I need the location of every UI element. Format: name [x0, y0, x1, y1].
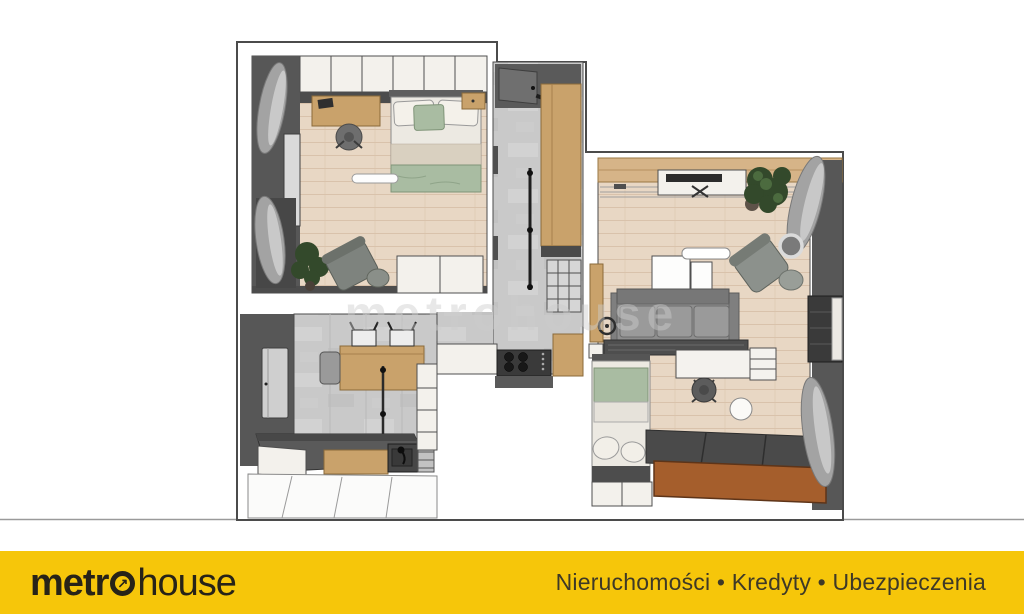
kitchen-counter-white — [437, 344, 497, 374]
kitchen-bottom-cabinets — [248, 474, 437, 518]
metrohouse-logo: metr ↗ house — [30, 564, 236, 602]
bedroom-desk-chair — [336, 124, 362, 150]
floor-plan-svg: metrohouse — [0, 0, 1024, 551]
wall-shelf-unit — [808, 296, 842, 362]
white-bench — [682, 248, 730, 259]
white-pouf — [730, 398, 752, 420]
brand-bar: metr ↗ house Nieruchomości • Kredyty • U… — [0, 551, 1024, 614]
logo-arrow-icon: ↗ — [110, 571, 135, 596]
bedroom-runner — [352, 174, 398, 183]
kitchen-chair — [320, 352, 340, 384]
watermark-text: metrohouse — [345, 288, 680, 341]
kitchen — [240, 314, 437, 518]
hallway-door-frame-2 — [493, 236, 498, 260]
tv-unit — [658, 170, 746, 197]
rail-bracket-1 — [614, 184, 626, 189]
balcony-platform — [646, 430, 826, 503]
cooktop — [497, 350, 551, 376]
coffee-table-1 — [652, 256, 690, 292]
kitchen-door — [262, 348, 288, 418]
kitchen-sink — [388, 444, 418, 472]
round-mirror — [780, 235, 802, 257]
living-room-bed — [591, 354, 652, 506]
bedroom-nightstand — [462, 93, 485, 109]
coffee-table-2 — [691, 262, 712, 290]
counter-front — [495, 376, 553, 388]
logo-text-metr: metr — [30, 564, 108, 602]
real-estate-floorplan-image: metrohouse metr ↗ house Nieruchomości • … — [0, 0, 1024, 614]
logo-text-house: house — [137, 564, 236, 602]
living-room-pouf — [779, 270, 803, 290]
tagline: Nieruchomości • Kredyty • Ubezpieczenia — [556, 569, 986, 596]
bedroom-desk — [312, 96, 380, 126]
hallway-door-frame-1 — [493, 146, 498, 174]
living-room-desk-chair — [692, 378, 716, 402]
hallway-wardrobe — [541, 84, 581, 257]
kitchen-tall-cabinets — [417, 364, 437, 450]
living-room-desk — [676, 348, 776, 380]
bedroom-pouf — [367, 269, 389, 287]
bedroom — [250, 56, 487, 293]
